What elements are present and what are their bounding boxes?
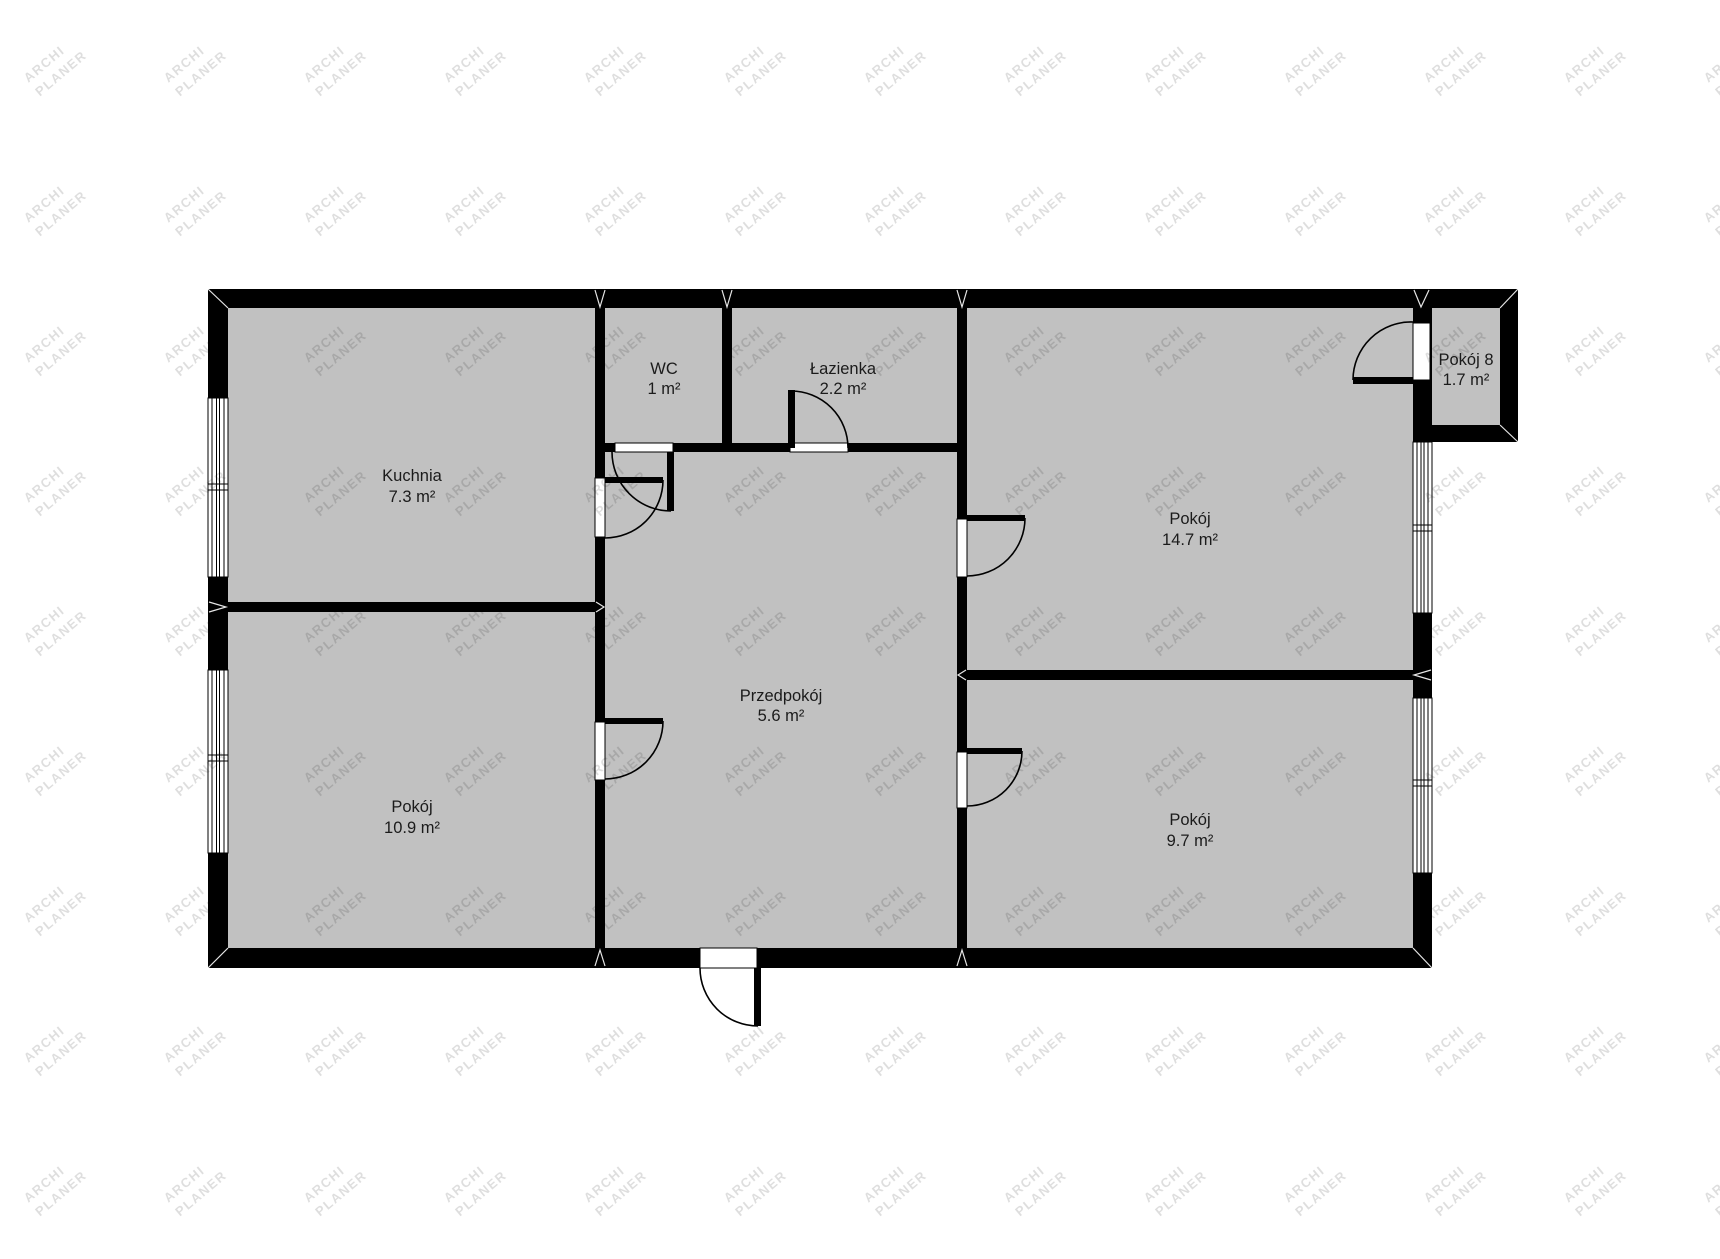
room-floors (228, 308, 1500, 948)
room-area-label: 7.3 m² (389, 488, 436, 506)
room-area-label: 1.7 m² (1443, 371, 1490, 389)
wall-przedpokoj-pokoje (957, 308, 967, 948)
window-pokoj-10-9 (208, 670, 228, 853)
room-name-label: WC (650, 360, 678, 378)
wall-wc-lazienka (722, 308, 732, 443)
pokoj-9-7-door-opening (957, 752, 967, 808)
room-area-label: 14.7 m² (1162, 531, 1218, 549)
lazienka-door-opening (790, 443, 848, 452)
room-area-label: 9.7 m² (1167, 832, 1214, 850)
pokoj-10-9-door-opening (595, 722, 605, 780)
kuchnia-door-opening (595, 478, 605, 537)
pokoj-14-7-door-opening (957, 519, 967, 577)
window-pokoj-14-7 (1413, 442, 1432, 613)
entrance-door (700, 968, 761, 1026)
room-name-label: Pokój 8 (1438, 351, 1493, 369)
wc-door-opening (615, 443, 673, 452)
entrance-opening (700, 948, 757, 968)
wall-pokoj147-pokoj97 (957, 670, 1413, 680)
room-name-label: Łazienka (810, 360, 877, 378)
room-name-label: Przedpokój (740, 687, 823, 705)
wall-kuchnia-przedpokoj (595, 308, 605, 948)
room-name-label: Pokój (1169, 510, 1210, 528)
room-area-label: 1 m² (648, 380, 682, 398)
floor-plan-page: Kuchnia 7.3 m² WC 1 m² Łazienka 2.2 m² P… (0, 0, 1720, 1259)
room-area-label: 5.6 m² (758, 707, 805, 725)
main-floor (228, 308, 1413, 948)
wall-pokoj8-right (1500, 308, 1518, 442)
window-pokoj-9-7 (1413, 698, 1432, 873)
room-name-label: Pokój (1169, 811, 1210, 829)
room-area-label: 2.2 m² (820, 380, 867, 398)
wall-top (208, 289, 1518, 308)
room-name-label: Pokój (391, 798, 432, 816)
room-name-label: Kuchnia (382, 467, 442, 485)
pokoj-8-door-opening (1413, 323, 1430, 380)
room-area-label: 10.9 m² (384, 819, 440, 837)
floor-plan-drawing: Kuchnia 7.3 m² WC 1 m² Łazienka 2.2 m² P… (0, 0, 1720, 1259)
wall-bottom (208, 948, 1432, 968)
window-kuchnia (208, 398, 228, 577)
wall-pokoj8-bottom (1430, 425, 1518, 442)
wall-kuchnia-pokoj109 (228, 602, 605, 612)
